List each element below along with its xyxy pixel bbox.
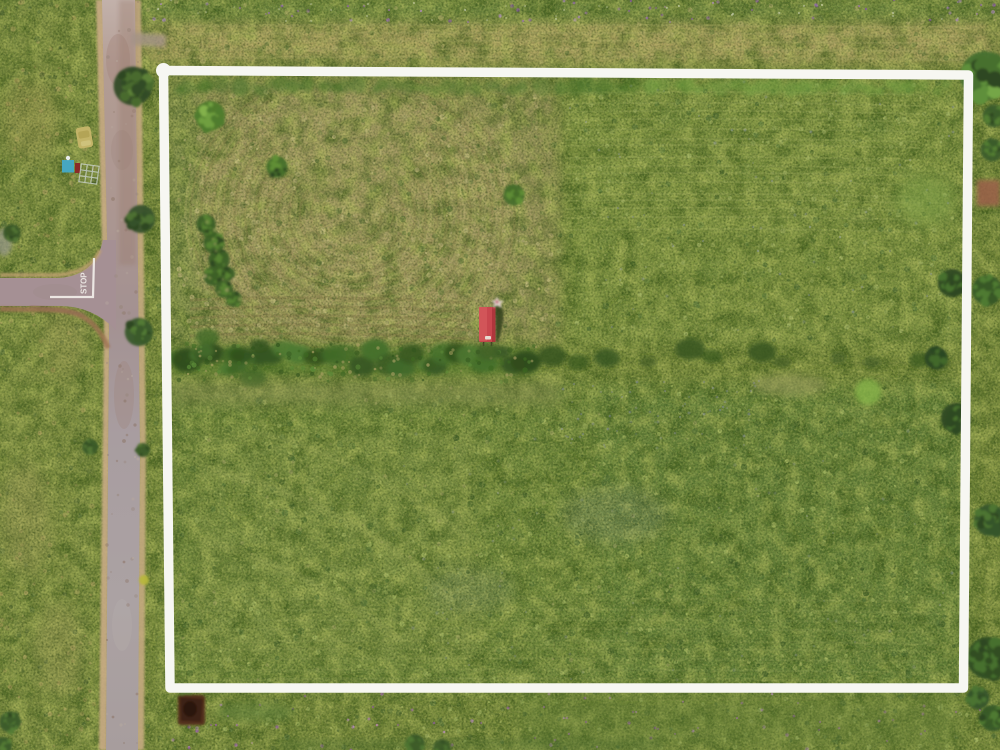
svg-text:STOP: STOP [80,272,89,294]
